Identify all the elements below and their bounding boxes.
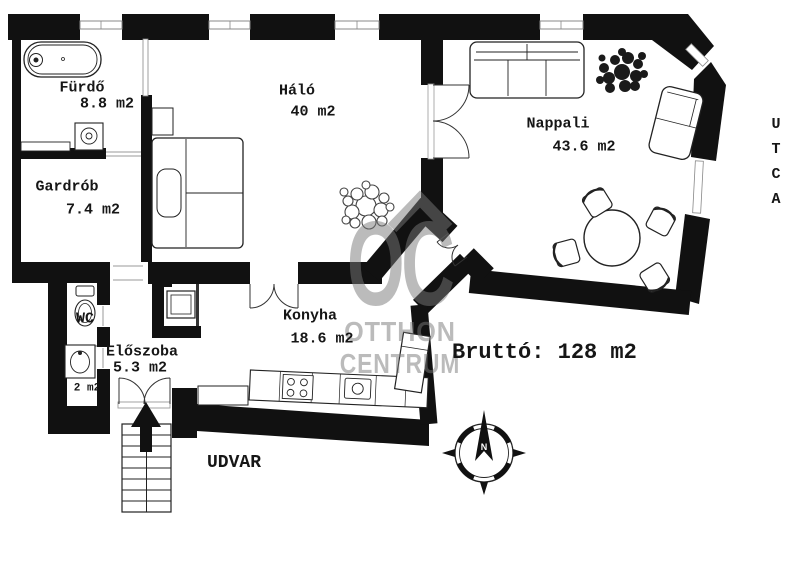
street-label: UTCA — [769, 116, 784, 216]
room-area-furdo: 8.8 m2 — [80, 97, 134, 112]
room-label-wc: WC — [76, 312, 94, 327]
room-label-furdo: Fürdő — [59, 81, 104, 96]
pillow — [157, 169, 181, 217]
courtyard-label: UDVAR — [207, 454, 261, 472]
floorplan-canvas: N OC OTTHON CENTRUM Fürdő 8.8 m2 Gardrób… — [0, 0, 800, 565]
room-label-eloszoba: Előszoba — [106, 345, 178, 360]
room-area-eloszoba: 5.3 m2 — [113, 361, 167, 376]
watermark-logo: OC — [347, 198, 453, 331]
room-area-halo: 40 m2 — [290, 105, 335, 120]
hall-cabinet — [167, 291, 195, 318]
gross-area-label: Bruttó: 128 m2 — [452, 342, 637, 364]
room-label-nappali: Nappali — [526, 117, 589, 132]
floorplan-drawing: N OC OTTHON CENTRUM — [0, 0, 800, 565]
dining-table — [584, 210, 640, 266]
bath-partition-window — [143, 39, 148, 96]
bathtub — [24, 42, 101, 77]
room-area-gardrob: 7.4 m2 — [66, 203, 120, 218]
plant-livingroom — [596, 48, 648, 93]
compass-north-label: N — [481, 442, 488, 452]
sofa — [470, 42, 584, 98]
watermark-line1: OTTHON — [344, 316, 456, 348]
room-label-halo: Háló — [279, 84, 315, 99]
washbasin — [65, 345, 95, 378]
kitchen-south-wall — [197, 404, 429, 446]
stove — [282, 374, 313, 399]
room-label-gardrob: Gardrób — [35, 180, 98, 195]
washing-machine — [75, 123, 103, 150]
room-area-kamra: 2 m2 — [74, 384, 100, 395]
bed — [152, 138, 243, 248]
low-cabinet — [198, 386, 248, 405]
compass-icon: N — [442, 410, 526, 495]
bath-shelf — [21, 142, 70, 151]
nightstand — [152, 108, 173, 135]
watermark: OC OTTHON CENTRUM — [340, 198, 460, 380]
compass-needle — [475, 410, 493, 461]
room-area-nappali: 43.6 m2 — [552, 140, 615, 155]
room-area-konyha: 18.6 m2 — [290, 332, 353, 347]
room-label-konyha: Konyha — [283, 309, 337, 324]
watermark-line2: CENTRUM — [340, 349, 460, 380]
